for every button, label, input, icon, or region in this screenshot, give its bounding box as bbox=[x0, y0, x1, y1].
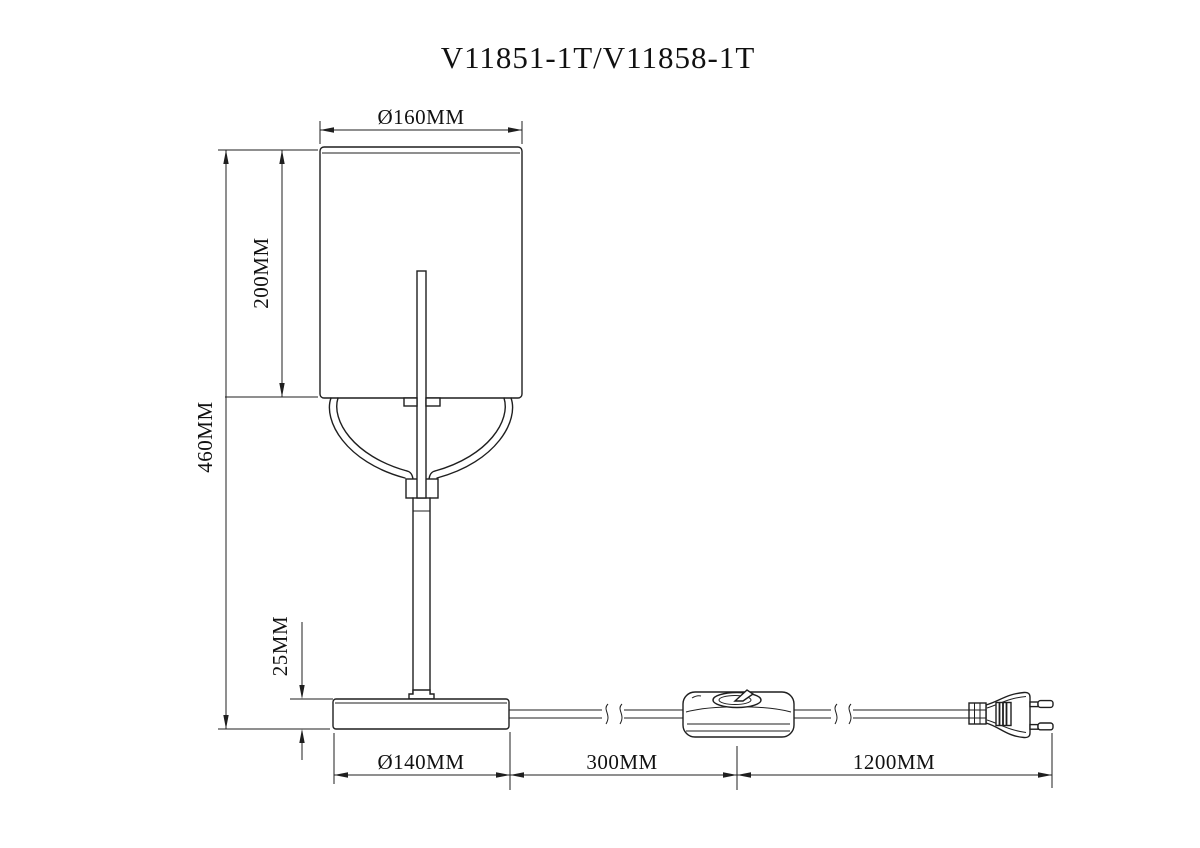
cord-break-symbol bbox=[606, 704, 608, 724]
shade-diameter-label: Ø160MM bbox=[377, 105, 464, 129]
inline-switch bbox=[683, 690, 794, 737]
plug-pin-bottom bbox=[1030, 723, 1053, 730]
dimension-shade-height: 200MM bbox=[218, 150, 318, 397]
shade-height-label: 200MM bbox=[249, 237, 273, 308]
rod-bracket-left bbox=[404, 398, 417, 406]
base-height-label: 25MM bbox=[268, 616, 292, 676]
technical-drawing-page: V11851-1T/V11858-1T bbox=[0, 0, 1200, 848]
cord-switch-to-plug-label: 1200MM bbox=[853, 750, 935, 774]
cord-base-to-switch-label: 300MM bbox=[586, 750, 657, 774]
cord-break-symbol bbox=[620, 704, 622, 724]
dimension-base-to-switch: 300MM bbox=[510, 746, 737, 790]
power-plug bbox=[969, 692, 1053, 737]
plug-pin-top bbox=[1030, 701, 1053, 708]
lamp-base bbox=[333, 699, 509, 729]
dimension-switch-to-plug: 1200MM bbox=[737, 733, 1052, 788]
dimension-total-height: 460MM bbox=[193, 150, 330, 729]
cord-break-symbol bbox=[849, 704, 851, 724]
lamp-drawing: V11851-1T/V11858-1T bbox=[0, 0, 1200, 848]
dimension-base-height: 25MM bbox=[268, 616, 333, 760]
lamp-stem bbox=[409, 498, 434, 699]
total-height-label: 460MM bbox=[193, 401, 217, 472]
drawing-title: V11851-1T/V11858-1T bbox=[441, 40, 756, 75]
dimension-shade-diameter: Ø160MM bbox=[320, 105, 522, 144]
stem-base-flange bbox=[409, 690, 434, 699]
dimension-base-diameter: Ø140MM bbox=[334, 732, 510, 790]
cord-break-symbol bbox=[835, 704, 837, 724]
rod-bracket-right bbox=[426, 398, 440, 406]
base-diameter-label: Ø140MM bbox=[377, 750, 464, 774]
plug-strain-relief bbox=[969, 703, 986, 724]
